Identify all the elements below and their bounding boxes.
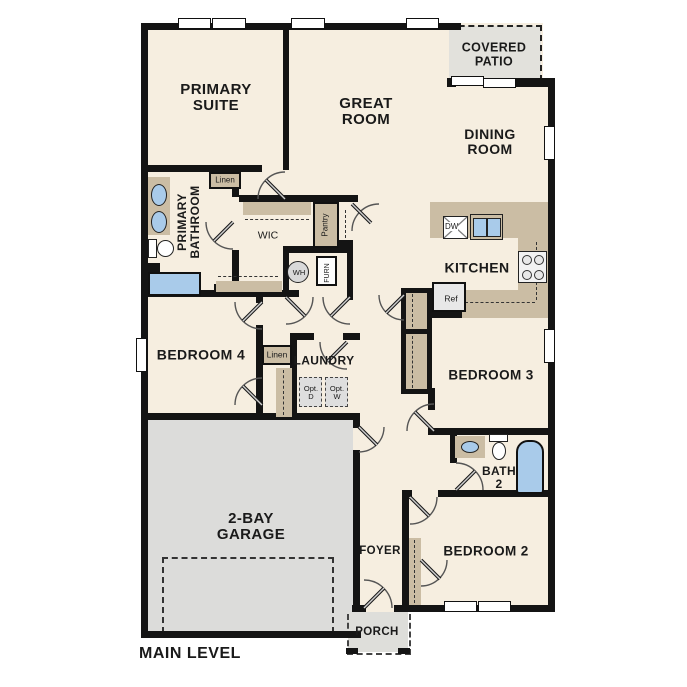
furnace: FURN xyxy=(316,256,337,286)
wall xyxy=(353,450,360,605)
bedroom4-closet xyxy=(276,368,292,417)
optional-dryer: Opt. D xyxy=(299,377,322,407)
vanity-sink xyxy=(151,184,167,206)
room-label-dining-room: DINING ROOM xyxy=(464,127,515,157)
furnace-label: FURN xyxy=(324,263,332,282)
wall xyxy=(256,293,263,303)
wall xyxy=(516,78,555,87)
window xyxy=(544,126,555,160)
linen-closet-hall: Linen xyxy=(262,345,292,365)
room-label-bedroom-3: BEDROOM 3 xyxy=(448,369,533,384)
wall xyxy=(256,325,263,420)
wall xyxy=(141,631,361,638)
kitchen-cabinet-dash xyxy=(345,210,346,238)
wall xyxy=(353,420,360,428)
wall xyxy=(398,648,410,654)
window xyxy=(178,18,211,29)
room-label-pantry: Pantry xyxy=(322,213,331,236)
room-label-foyer: FOYER xyxy=(359,545,401,557)
wic-rod xyxy=(218,276,278,277)
window xyxy=(291,18,325,29)
bedroom2-closet-rod xyxy=(414,540,415,603)
hall-closet-block xyxy=(401,288,432,394)
room-label-bedroom-4: BEDROOM 4 xyxy=(157,347,245,362)
wall xyxy=(239,195,358,202)
bath2-sink xyxy=(461,441,479,453)
linen-label: Linen xyxy=(267,350,288,359)
wall xyxy=(343,333,360,340)
window xyxy=(406,18,439,29)
room-label-wic: WIC xyxy=(258,230,278,241)
optional-washer: Opt. W xyxy=(325,377,348,407)
wall xyxy=(141,23,148,638)
wall xyxy=(141,413,360,420)
refrigerator: Ref xyxy=(432,282,466,312)
sliding-door xyxy=(483,78,516,88)
wall xyxy=(283,23,289,170)
wall xyxy=(402,490,409,605)
dishwasher-label: DW xyxy=(445,222,458,231)
bedroom3-closet-rod xyxy=(412,336,413,388)
kitchen-sink xyxy=(470,214,503,240)
window xyxy=(544,329,555,363)
water-heater: WH xyxy=(287,261,309,283)
window xyxy=(478,601,511,612)
plan-title: MAIN LEVEL xyxy=(139,645,241,663)
floor-plan: DW Ref Linen Linen WH FURN Op xyxy=(0,0,687,687)
refrigerator-label: Ref xyxy=(444,294,457,303)
stove xyxy=(518,251,547,283)
sink-basin xyxy=(473,218,487,237)
room-label-great-room: GREAT ROOM xyxy=(339,96,392,128)
wic-rod xyxy=(245,219,309,220)
wall xyxy=(352,605,366,612)
optional-washer-label: Opt. W xyxy=(330,385,344,401)
room-label-bedroom-2: BEDROOM 2 xyxy=(443,545,528,560)
room-label-primary-bathroom: PRIMARY BATHROOM xyxy=(176,162,202,282)
sliding-door xyxy=(451,76,484,86)
wic-shelf xyxy=(216,281,282,292)
toilet xyxy=(489,434,508,442)
toilet-bowl xyxy=(492,442,506,460)
sink-basin xyxy=(487,218,501,237)
water-heater-label: WH xyxy=(293,269,306,277)
bedroom4-closet-rod xyxy=(283,370,284,415)
kitchen-cabinet-dash xyxy=(465,302,535,303)
wall xyxy=(445,23,461,30)
window xyxy=(136,338,147,372)
window xyxy=(444,601,477,612)
window xyxy=(212,18,246,29)
wall xyxy=(148,263,160,272)
bedroom2-closet xyxy=(409,538,421,605)
linen-label: Linen xyxy=(215,177,235,186)
wic-shelf xyxy=(243,202,311,215)
room-label-garage: 2-BAY GARAGE xyxy=(217,511,285,543)
toilet xyxy=(148,239,157,258)
room-label-porch: PORCH xyxy=(355,626,399,638)
linen-closet-bath: Linen xyxy=(209,172,241,189)
wall xyxy=(347,246,353,300)
bathtub xyxy=(516,440,544,494)
wall xyxy=(401,329,432,334)
coat-closet-rod xyxy=(412,294,413,327)
patio-notch xyxy=(543,20,557,78)
room-label-primary-suite: PRIMARY SUITE xyxy=(180,82,251,114)
room-label-laundry: LAUNDRY xyxy=(293,355,354,368)
toilet-bowl xyxy=(157,240,174,257)
room-label-kitchen: KITCHEN xyxy=(444,260,509,275)
optional-dryer-label: Opt. D xyxy=(304,385,318,401)
room-label-covered-patio: COVERED PATIO xyxy=(462,42,527,69)
wall xyxy=(148,165,262,172)
vanity-sink xyxy=(151,211,167,233)
wall xyxy=(290,333,314,340)
kitchen-counter-bottom xyxy=(462,290,518,318)
garage-door-dashed xyxy=(162,557,334,633)
wall xyxy=(346,648,358,654)
dishwasher: DW xyxy=(443,216,468,239)
room-label-bath-2: BATH 2 xyxy=(482,465,516,491)
